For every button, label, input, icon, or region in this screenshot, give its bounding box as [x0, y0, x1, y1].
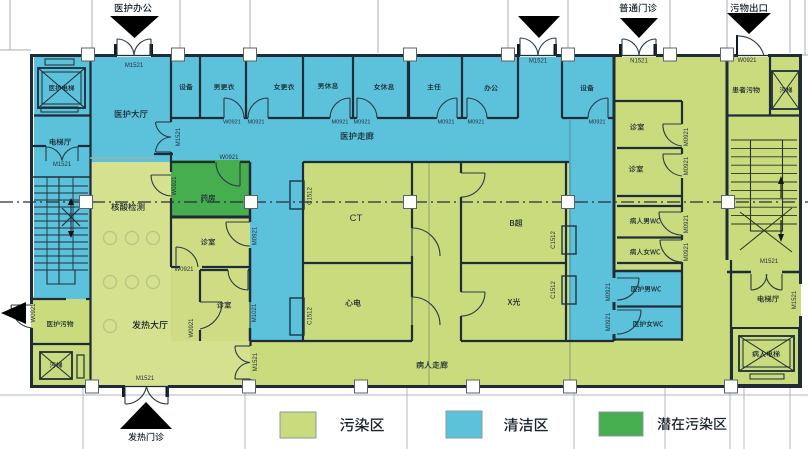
svg-text:M0921: M0921	[606, 312, 612, 331]
svg-text:N1521: N1521	[630, 59, 648, 65]
svg-text:M0921: M0921	[684, 127, 690, 146]
svg-text:M0921: M0921	[253, 226, 259, 245]
svg-text:M1521: M1521	[176, 127, 182, 146]
svg-text:M1521: M1521	[792, 290, 798, 309]
svg-text:W0921: W0921	[31, 303, 37, 323]
svg-text:W0921: W0921	[172, 176, 178, 196]
svg-text:M0921: M0921	[331, 120, 348, 126]
svg-text:M0921: M0921	[588, 120, 605, 126]
svg-text:W0921: W0921	[223, 120, 241, 126]
svg-text:W0921: W0921	[189, 318, 195, 338]
svg-text:M0921: M0921	[684, 242, 690, 261]
svg-text:W0921: W0921	[219, 155, 239, 161]
svg-text:M0921: M0921	[606, 282, 612, 301]
svg-text:M0921: M0921	[247, 120, 264, 126]
svg-text:M1021: M1021	[252, 303, 258, 322]
svg-text:CT: CT	[350, 213, 363, 224]
svg-text:W0921: W0921	[174, 267, 194, 273]
svg-text:M0921: M0921	[437, 120, 454, 126]
svg-text:M0921: M0921	[467, 120, 484, 126]
svg-text:C1512: C1512	[551, 281, 557, 299]
svg-text:C1512: C1512	[308, 187, 314, 205]
svg-text:M0921: M0921	[353, 120, 370, 126]
svg-text:M1521: M1521	[760, 259, 779, 265]
svg-text:W0921: W0921	[737, 58, 757, 64]
svg-text:M1521: M1521	[53, 162, 72, 168]
svg-text:M0921: M0921	[684, 214, 690, 233]
svg-text:C1512: C1512	[308, 307, 314, 325]
svg-text:M1521: M1521	[125, 63, 144, 69]
svg-text:M1521: M1521	[136, 376, 155, 382]
svg-text:M1521: M1521	[253, 352, 259, 371]
svg-text:M0921: M0921	[684, 156, 690, 175]
svg-text:C1512: C1512	[551, 231, 557, 249]
svg-text:M1521: M1521	[529, 59, 548, 65]
